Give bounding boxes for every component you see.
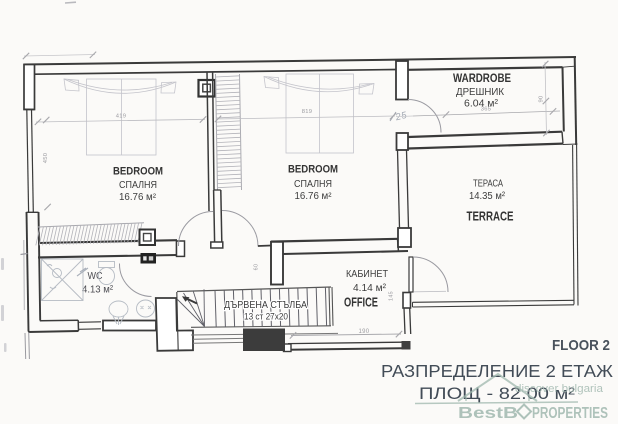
svg-text:КАБИНЕТ: КАБИНЕТ [346, 269, 389, 280]
svg-text:190: 190 [359, 329, 370, 335]
svg-text:TERRACE: TERRACE [467, 210, 514, 224]
svg-text:60: 60 [254, 264, 260, 271]
svg-text:ТЕРАСА: ТЕРАСА [473, 179, 503, 190]
svg-text:PROPERTIES: PROPERTIES [532, 405, 608, 422]
svg-text:СПАЛНЯ: СПАЛНЯ [294, 179, 332, 190]
svg-text:14.35 м²: 14.35 м² [469, 191, 506, 202]
svg-text:819: 819 [302, 109, 313, 115]
svg-text:BEDROOM: BEDROOM [113, 166, 163, 178]
svg-text:4.14 м²: 4.14 м² [353, 283, 387, 294]
svg-text:ДЪРВЕНА СТЪЛБА: ДЪРВЕНА СТЪЛБА [224, 300, 307, 311]
svg-text:СПАЛНЯ: СПАЛНЯ [119, 180, 157, 191]
svg-text:16.76 м²: 16.76 м² [119, 192, 157, 203]
svg-text:450: 450 [43, 153, 49, 164]
svg-text:WARDROBE: WARDROBE [453, 72, 511, 85]
svg-text:145: 145 [389, 291, 395, 301]
svg-text:ДРЕШНИК: ДРЕШНИК [456, 87, 504, 98]
svg-text:BEDROOM: BEDROOM [288, 164, 338, 176]
svg-text:РАЗПРЕДЕЛЕНИЕ 2 ЕТАЖ: РАЗПРЕДЕЛЕНИЕ 2 ЕТАЖ [381, 361, 613, 381]
svg-text:13 ст 27х20: 13 ст 27х20 [244, 311, 288, 322]
svg-text:419: 419 [116, 114, 127, 120]
svg-text:OFFICE: OFFICE [344, 295, 378, 310]
svg-text:365: 365 [481, 107, 492, 113]
svg-text:FLOOR 2: FLOOR 2 [552, 337, 610, 354]
svg-text:BestB: BestB [458, 405, 518, 422]
svg-text:90: 90 [539, 95, 545, 102]
svg-text:16.76 м²: 16.76 м² [295, 191, 333, 202]
svg-text:discover bulgaria: discover bulgaria [515, 383, 603, 395]
svg-text:4.13 м²: 4.13 м² [82, 285, 114, 296]
svg-text:WC: WC [88, 271, 103, 282]
